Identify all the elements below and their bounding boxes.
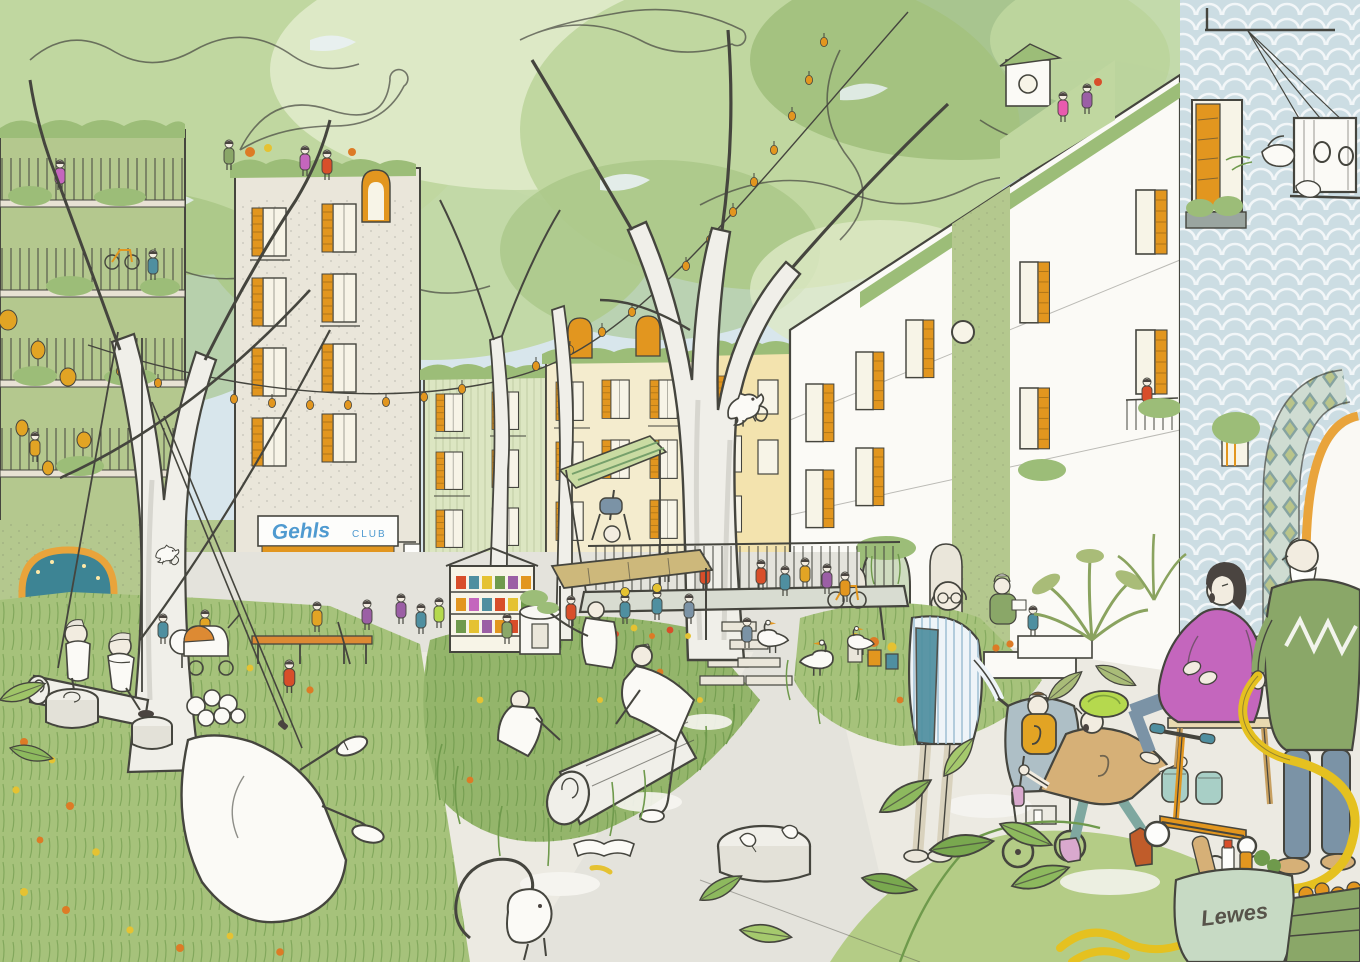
club-sign-caps: CLUB (352, 529, 387, 540)
porthole-window (952, 321, 974, 343)
big-shuttered-window-right (1186, 100, 1246, 228)
stump-with-frogs (718, 825, 810, 881)
club-sign-script: Gehls (271, 519, 330, 544)
street-scene-illustration: Gehls CLUB (0, 0, 1360, 962)
illustration-canvas: Gehls CLUB (0, 0, 1360, 962)
